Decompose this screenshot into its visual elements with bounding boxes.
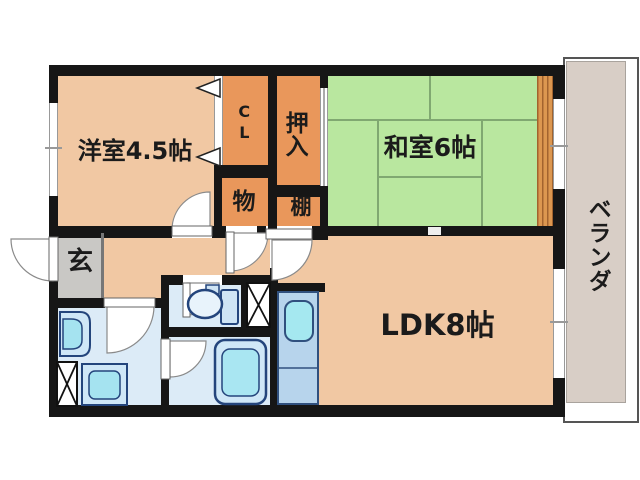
wall-right (553, 378, 565, 417)
wall-v-oshiire-washitsu (320, 186, 328, 238)
wall-right (553, 65, 565, 99)
window-tick (550, 145, 568, 147)
wall-mid (257, 226, 266, 238)
wall-right (553, 189, 565, 269)
closet-cl-label: CL (235, 98, 252, 148)
hall-floor-right (169, 238, 270, 275)
western-room-label: 洋室4.5帖 (60, 139, 210, 164)
pipe-shaft-x-icon (247, 283, 270, 327)
fusuma-center-line (323, 88, 325, 186)
wall-washroom-top (49, 298, 105, 308)
wall-left (49, 65, 58, 103)
window-washitsu (553, 99, 565, 189)
western-room-door-leaf (172, 226, 212, 236)
entrance-door-arc (11, 239, 53, 281)
tatami-line (429, 76, 431, 121)
wall-top (49, 65, 565, 76)
wall-v-closets (268, 65, 277, 238)
wall-mid (49, 226, 172, 238)
toilet-room-floor (169, 285, 241, 327)
entrance-door-leaf (49, 237, 58, 281)
wood-strip (537, 76, 553, 226)
shelf-label: 棚 (287, 196, 315, 218)
bathroom-floor (169, 337, 270, 405)
wall-mid (212, 226, 226, 238)
veranda-label: ベランダ (585, 186, 609, 304)
wall-v-oshiire-washitsu (320, 65, 328, 88)
window-tick (550, 321, 568, 323)
window-west (49, 103, 58, 196)
wall-toilet-top (222, 275, 278, 285)
wall-cl-storage (214, 165, 268, 178)
wall-v-toilet-shaft (241, 283, 247, 327)
genkan-label: 玄 (62, 249, 98, 276)
ldk-label: LDK8帖 (350, 310, 525, 340)
wall-v-western-storage (214, 165, 222, 227)
japanese-room-label: 和室6帖 (355, 135, 505, 161)
storage-label: 物 (230, 190, 258, 214)
shaft-x-line (247, 283, 270, 327)
wall-toilet-bottom (161, 327, 278, 337)
tatami-line (328, 119, 537, 121)
shaft-x-line (247, 283, 270, 327)
tatami-line (377, 176, 483, 178)
hall-floor-left (104, 238, 169, 298)
wall-washroom-top (155, 298, 169, 308)
genkan-step-line (101, 233, 104, 298)
washroom-floor (58, 308, 161, 405)
window-ldk (553, 269, 565, 378)
wall-bottom (49, 405, 565, 417)
oshiire-label: 押入 (282, 103, 306, 165)
wall-v-ldk-left (270, 268, 278, 417)
wall-toilet-top (161, 275, 183, 285)
wall-kitchen-stub (278, 283, 325, 292)
cl-folding-door (214, 76, 223, 165)
wall-v-wash-bath (161, 377, 169, 417)
floorplan-canvas: 洋室4.5帖 和室6帖 LDK8帖 玄 CL 押入 物 棚 ベランダ (0, 0, 640, 480)
wall-notch (428, 227, 441, 235)
washroom-door-leaf (104, 298, 155, 307)
